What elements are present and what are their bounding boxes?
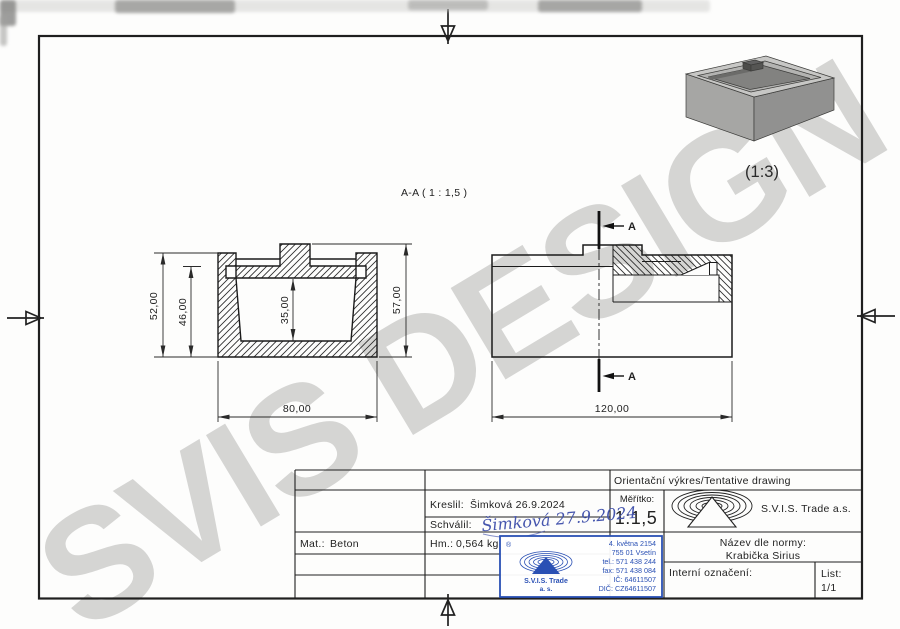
centering-mark-top-icon [442,9,455,44]
cut-label-bottom: A [628,371,636,383]
scan-smudge [538,0,642,12]
drawn-label: Kreslil: [430,499,464,511]
section-view-a-a: A-A ( 1 : 1,5 ) 52,00 46,00 35,00 57,00 … [148,187,467,422]
title-block: Orientační výkres/Tentative drawing Měří… [295,470,862,599]
dim-cavity-depth: 35,00 [279,296,291,324]
drawn-value: Šimková 26.9.2024 [470,498,565,511]
render-scale-label: (1:3) [745,163,779,181]
scan-smudge [408,0,488,10]
cut-label-top: A [628,221,636,233]
material-label: Mat.: [300,538,325,550]
material-value: Beton [330,538,359,550]
svis-logo-icon [672,490,752,527]
dim-width-80: 80,00 [283,403,311,415]
dim-height-total: 57,00 [391,286,403,314]
scan-smudge-edge [0,16,7,46]
company-stamp: ® S.V.I.S. Trade a. s. 4. května 2154 75… [500,536,662,597]
side-view: A A 120,00 [492,211,732,422]
stamp-address-line: IČ: 64611507 [613,575,656,584]
dim-height-inner: 46,00 [177,298,189,326]
stamp-registered-mark: ® [506,541,512,549]
dim-width-120: 120,00 [595,403,630,415]
approved-label: Schválil: [430,519,472,531]
mass-value: 0,564 kg [456,538,499,550]
cut-arrow-top-icon [603,223,615,229]
technical-drawing-svg: A-A ( 1 : 1,5 ) 52,00 46,00 35,00 57,00 … [0,0,900,629]
cut-arrow-bottom-icon [603,373,615,379]
stamp-address-line: 4. května 2154 [609,539,656,548]
company-name: S.V.I.S. Trade a.s. [761,503,851,515]
stamp-address-line: DIČ: CZ64611507 [599,584,656,593]
stamp-company-line2: a. s. [540,586,553,593]
groove-notch [710,263,718,276]
stamp-address-line: fax: 571 438 084 [602,566,656,575]
section-label: A-A ( 1 : 1,5 ) [401,187,467,199]
tentative-label: Orientační výkres/Tentative drawing [614,475,791,487]
sheet-label: List: [821,568,842,580]
dim-height-outer: 52,00 [148,292,160,320]
scan-smudge [115,0,235,13]
stamp-address-line: tel.: 571 438 244 [602,557,656,566]
internal-id-label: Interní označení: [669,567,752,579]
stamp-address-line: 755 01 Vsetín [612,548,656,557]
scanned-technical-drawing: SVIS DESIGN A-A ( 1 : 1,5 ) [0,0,900,629]
norm-title-value: Krabička Sirius [726,550,801,562]
render-3d [686,56,834,141]
part-cross-section [218,244,377,357]
sheet-number: 1/1 [821,582,837,594]
norm-title-label: Název dle normy: [720,537,807,549]
mass-label: Hm.: [430,538,453,550]
stamp-company-line1: S.V.I.S. Trade [524,578,568,585]
